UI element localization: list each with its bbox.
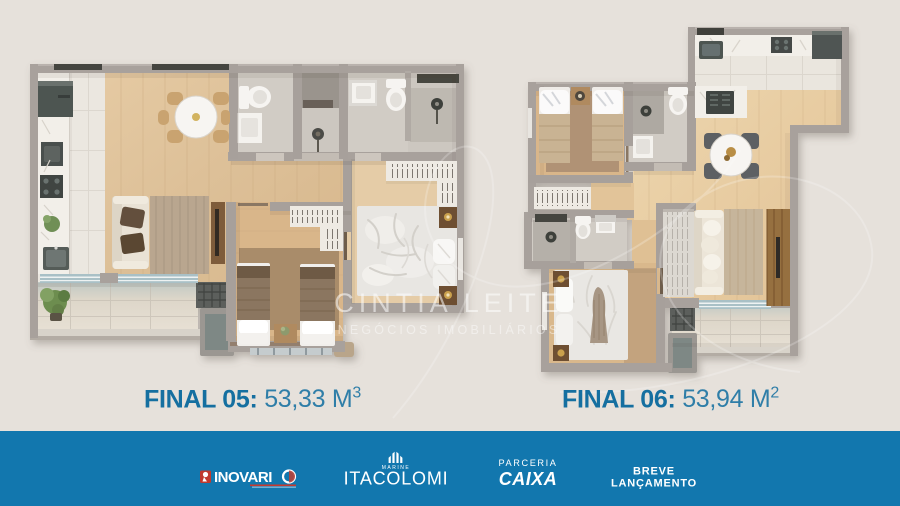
svg-text:ITACOLOMI: ITACOLOMI xyxy=(344,469,449,489)
svg-text:NEGÓCIOS IMOBILIÁRIOS: NEGÓCIOS IMOBILIÁRIOS xyxy=(338,322,561,337)
svg-text:LANÇAMENTO: LANÇAMENTO xyxy=(611,478,697,490)
svg-text:BREVE: BREVE xyxy=(633,466,675,478)
svg-text:CINTIA LEITE: CINTIA LEITE xyxy=(334,288,564,318)
svg-text:INOVARI: INOVARI xyxy=(214,469,272,486)
svg-text:CAIXA: CAIXA xyxy=(499,469,558,489)
svg-text:PARCERIA: PARCERIA xyxy=(498,458,557,468)
